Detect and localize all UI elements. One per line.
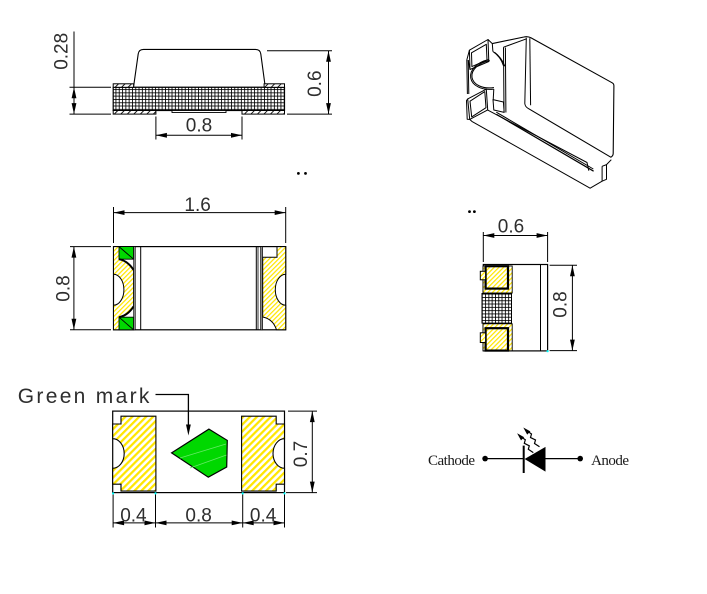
svg-text:0.8: 0.8 bbox=[550, 291, 571, 317]
svg-text:0.8: 0.8 bbox=[54, 275, 75, 301]
svg-text:Cathode: Cathode bbox=[428, 453, 475, 469]
svg-text:0.6: 0.6 bbox=[498, 217, 524, 238]
svg-text:Green mark: Green mark bbox=[18, 385, 152, 408]
svg-text:Anode: Anode bbox=[591, 453, 629, 469]
svg-text:0.7: 0.7 bbox=[291, 441, 312, 467]
svg-text:1.6: 1.6 bbox=[184, 195, 210, 216]
svg-text:0.28: 0.28 bbox=[52, 33, 73, 70]
svg-text:0.4: 0.4 bbox=[250, 506, 277, 527]
svg-text:0.6: 0.6 bbox=[305, 70, 326, 96]
svg-text:0.4: 0.4 bbox=[120, 506, 147, 527]
svg-text:0.8: 0.8 bbox=[186, 116, 212, 137]
svg-text:0.8: 0.8 bbox=[185, 506, 211, 527]
